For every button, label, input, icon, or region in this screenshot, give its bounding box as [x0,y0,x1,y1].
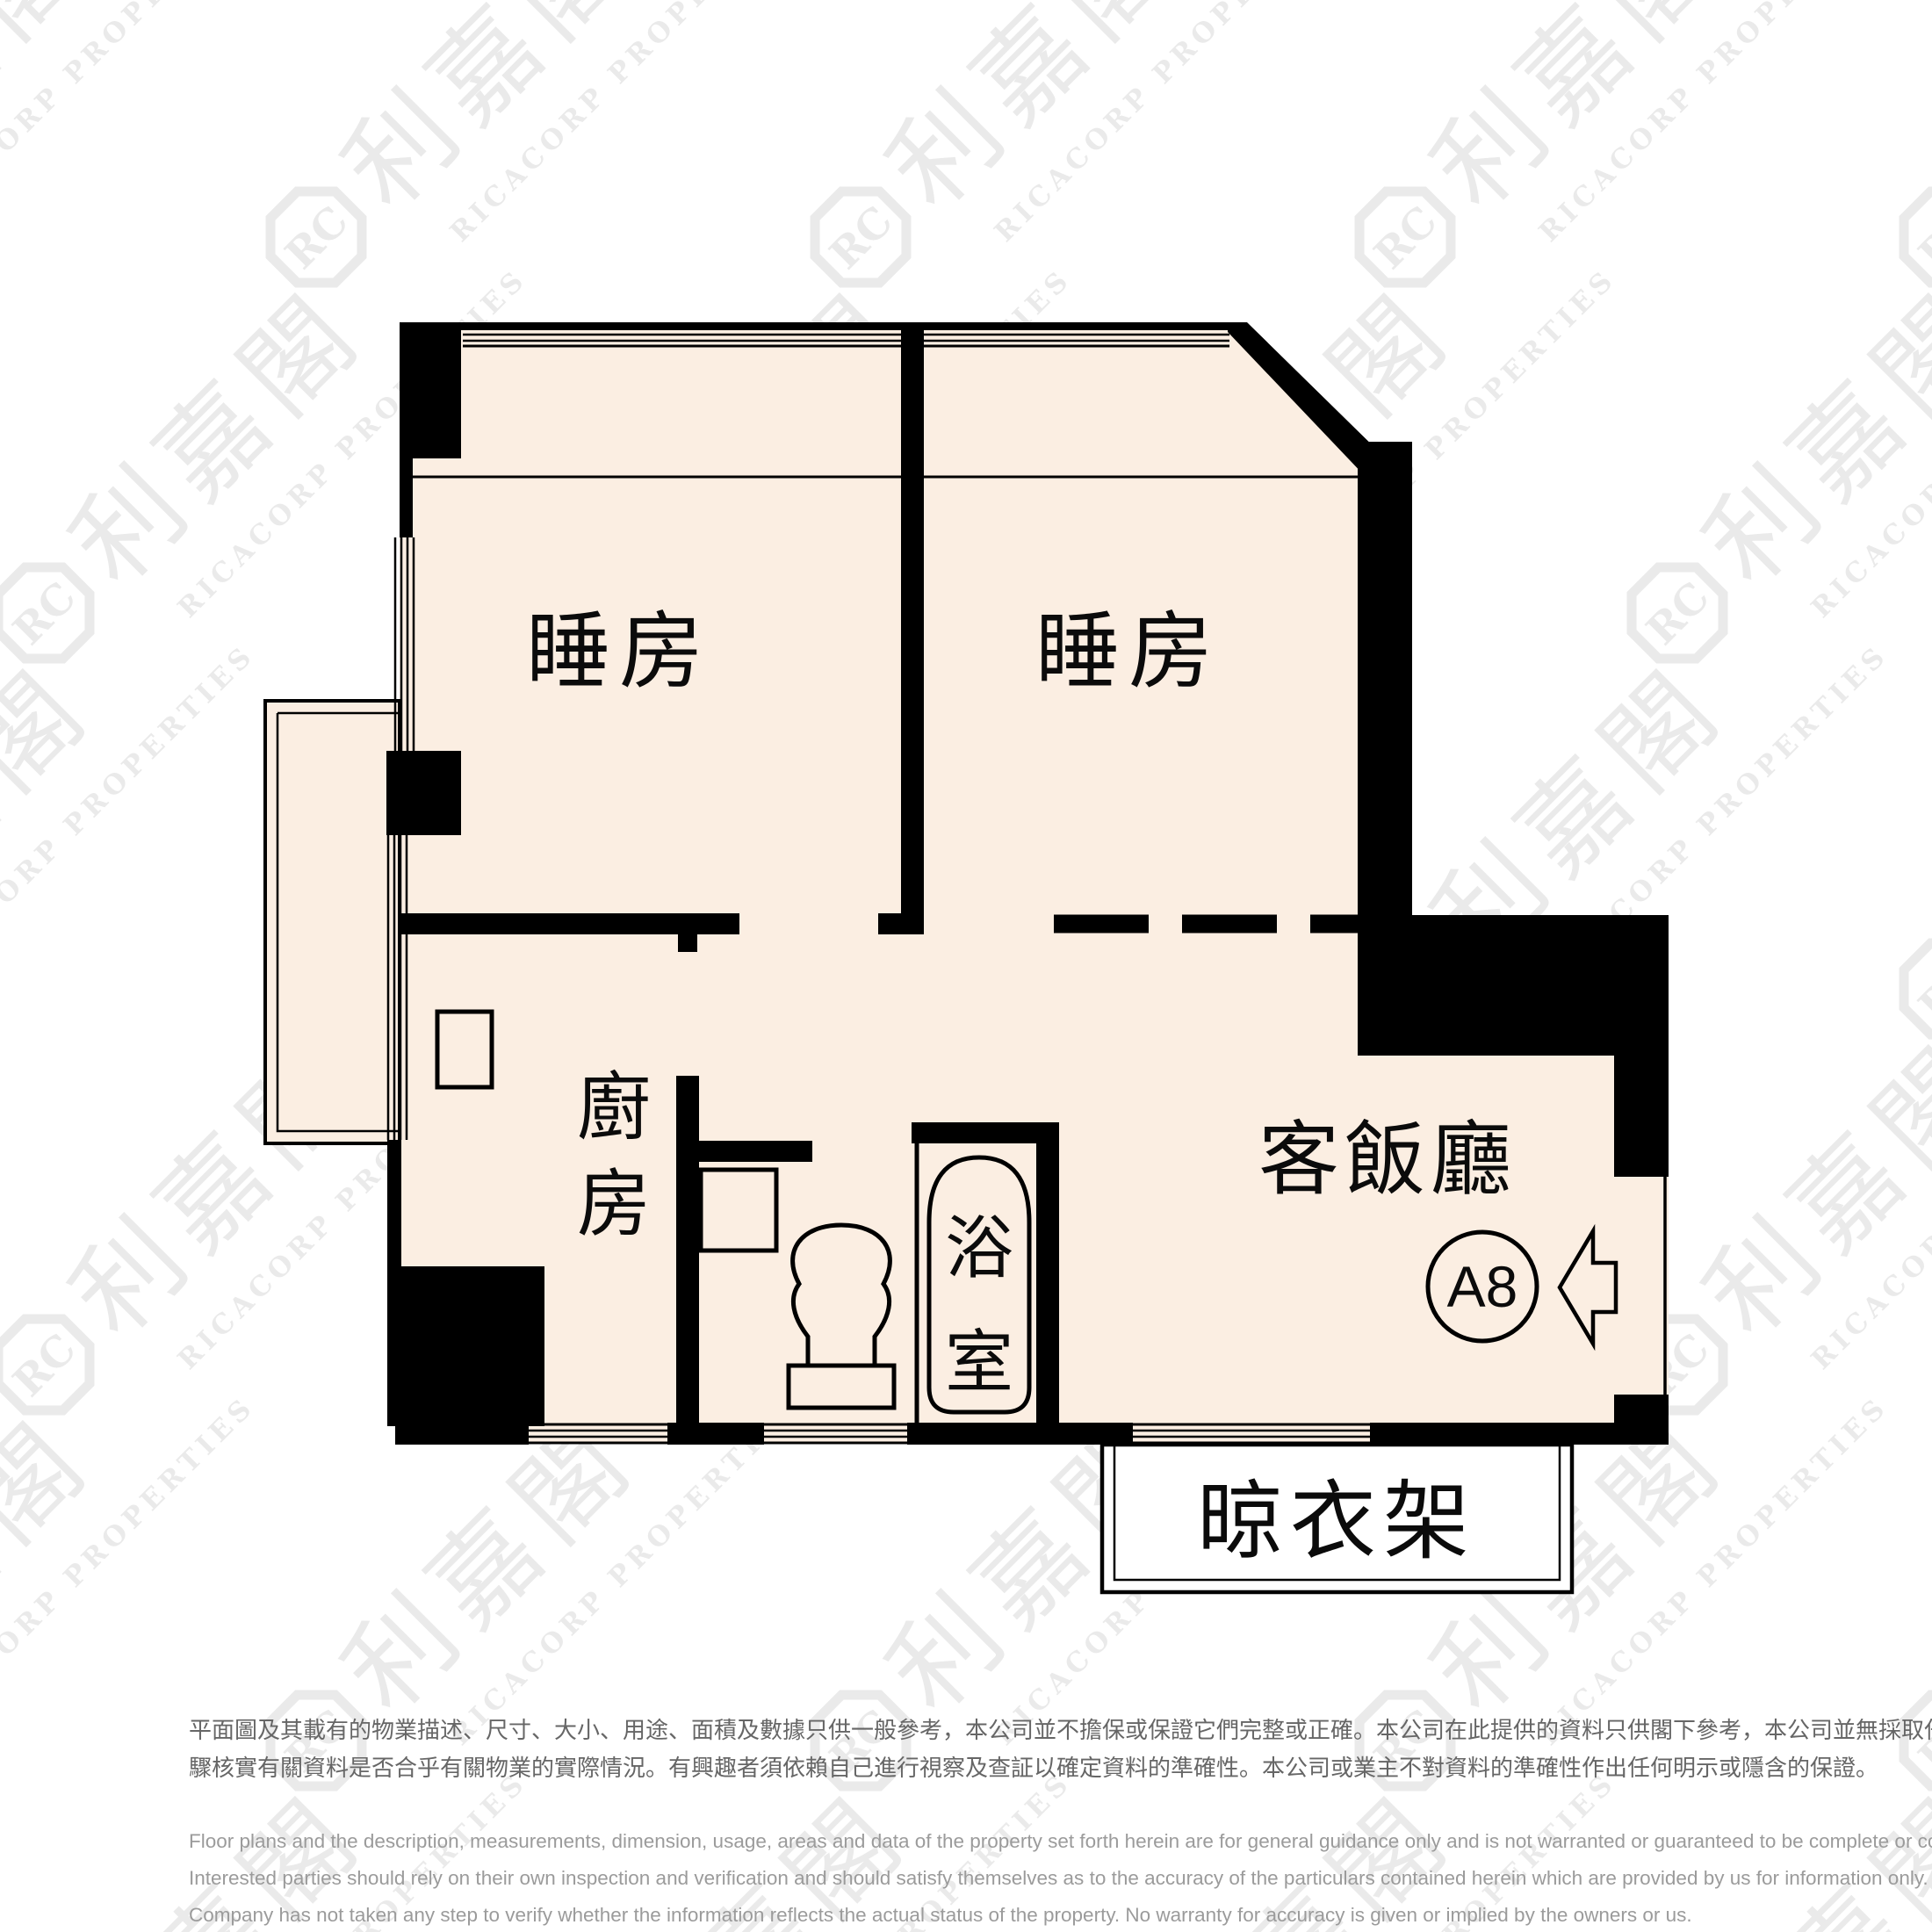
floor-plan-svg: RC 利嘉閣 RICACORP PROPERTIES [0,0,1932,1932]
disclaimer-en-line2: Interested parties should rely on their … [189,1860,1932,1897]
svg-text:室: 室 [945,1323,1013,1402]
disclaimer-zh: 平面圖及其載有的物業描述、尺寸、大小、用途、面積及數據只供一般參考，本公司並不擔… [189,1712,1932,1788]
disclaimer-zh-line1: 平面圖及其載有的物業描述、尺寸、大小、用途、面積及數據只供一般參考，本公司並不擔… [189,1712,1932,1750]
svg-text:廚: 廚 [577,1064,651,1150]
drying-rack: 晾衣架 [1102,1445,1572,1592]
disclaimer-en: Floor plans and the description, measure… [189,1823,1932,1932]
bedroom-2-label: 睡房 [1035,602,1222,701]
floor-plan-page: RC 利嘉閣 RICACORP PROPERTIES [0,0,1932,1932]
living-dining-label: 客飯廳 [1258,1113,1517,1207]
svg-text:浴: 浴 [945,1209,1013,1288]
svg-text:房: 房 [577,1161,651,1247]
balcony-floor [265,701,400,1143]
bedroom-1-label: 睡房 [526,602,712,701]
disclaimer-zh-line2: 驟核實有關資料是否合乎有關物業的實際情況。有興趣者須依賴自己進行視察及查証以確定… [189,1750,1932,1788]
disclaimer-en-line3: Company has not taken any step to verify… [189,1897,1932,1932]
unit-badge-label: A8 [1447,1254,1518,1319]
drying-rack-label: 晾衣架 [1197,1472,1476,1572]
disclaimer: 平面圖及其載有的物業描述、尺寸、大小、用途、面積及數據只供一般參考，本公司並不擔… [189,1712,1932,1932]
entrance: A8 [1428,1231,1616,1344]
disclaimer-en-line1: Floor plans and the description, measure… [189,1823,1932,1860]
